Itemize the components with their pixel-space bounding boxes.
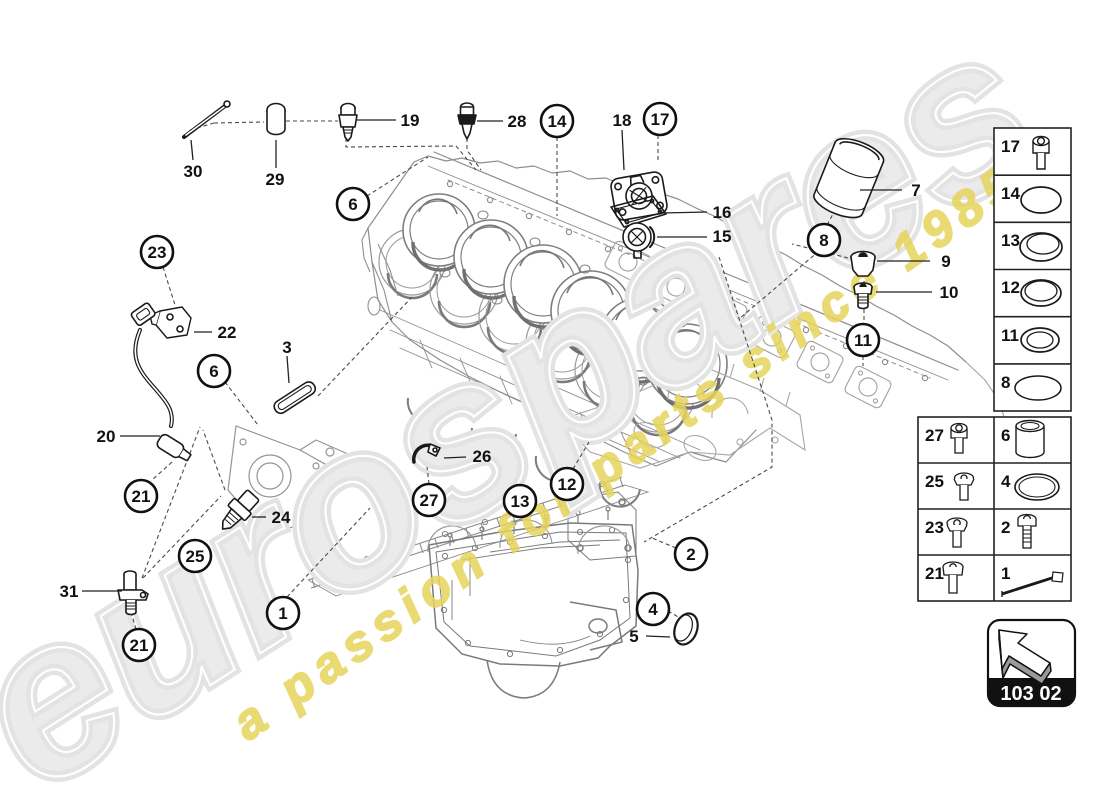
svg-text:14: 14 <box>1001 184 1020 203</box>
svg-text:23: 23 <box>148 243 167 262</box>
svg-text:21: 21 <box>132 487 151 506</box>
svg-text:21: 21 <box>130 636 149 655</box>
svg-text:23: 23 <box>925 518 944 537</box>
svg-text:28: 28 <box>508 112 527 131</box>
svg-text:13: 13 <box>1001 231 1020 250</box>
svg-text:103 02: 103 02 <box>1000 683 1061 705</box>
svg-text:16: 16 <box>713 203 732 222</box>
svg-text:1: 1 <box>278 604 287 623</box>
svg-text:17: 17 <box>651 110 670 129</box>
svg-text:12: 12 <box>1001 278 1020 297</box>
svg-text:2: 2 <box>686 545 695 564</box>
svg-text:29: 29 <box>266 170 285 189</box>
svg-text:13: 13 <box>511 492 530 511</box>
svg-text:11: 11 <box>1001 326 1019 345</box>
svg-text:11: 11 <box>854 331 872 350</box>
svg-text:4: 4 <box>648 600 658 619</box>
svg-text:25: 25 <box>925 472 944 491</box>
svg-text:25: 25 <box>186 547 205 566</box>
svg-text:4: 4 <box>1001 472 1011 491</box>
svg-text:5: 5 <box>629 627 638 646</box>
svg-text:24: 24 <box>272 508 291 527</box>
svg-text:14: 14 <box>548 112 567 131</box>
svg-text:8: 8 <box>1001 373 1010 392</box>
svg-text:6: 6 <box>1001 426 1010 445</box>
svg-text:12: 12 <box>558 475 577 494</box>
svg-text:19: 19 <box>401 111 420 130</box>
svg-text:10: 10 <box>940 283 959 302</box>
svg-text:27: 27 <box>925 426 944 445</box>
svg-text:20: 20 <box>97 427 116 446</box>
svg-text:15: 15 <box>713 227 732 246</box>
svg-text:21: 21 <box>925 564 944 583</box>
svg-text:6: 6 <box>209 362 218 381</box>
svg-text:30: 30 <box>184 162 203 181</box>
svg-text:17: 17 <box>1001 137 1020 156</box>
svg-text:3: 3 <box>282 338 291 357</box>
svg-text:31: 31 <box>60 582 79 601</box>
svg-text:7: 7 <box>911 181 920 200</box>
svg-text:27: 27 <box>420 491 439 510</box>
svg-text:9: 9 <box>941 252 950 271</box>
svg-text:2: 2 <box>1001 518 1010 537</box>
svg-text:22: 22 <box>218 323 237 342</box>
svg-text:18: 18 <box>613 111 632 130</box>
svg-text:6: 6 <box>348 195 357 214</box>
svg-text:26: 26 <box>473 447 492 466</box>
svg-text:1: 1 <box>1001 564 1010 583</box>
svg-text:8: 8 <box>819 231 828 250</box>
